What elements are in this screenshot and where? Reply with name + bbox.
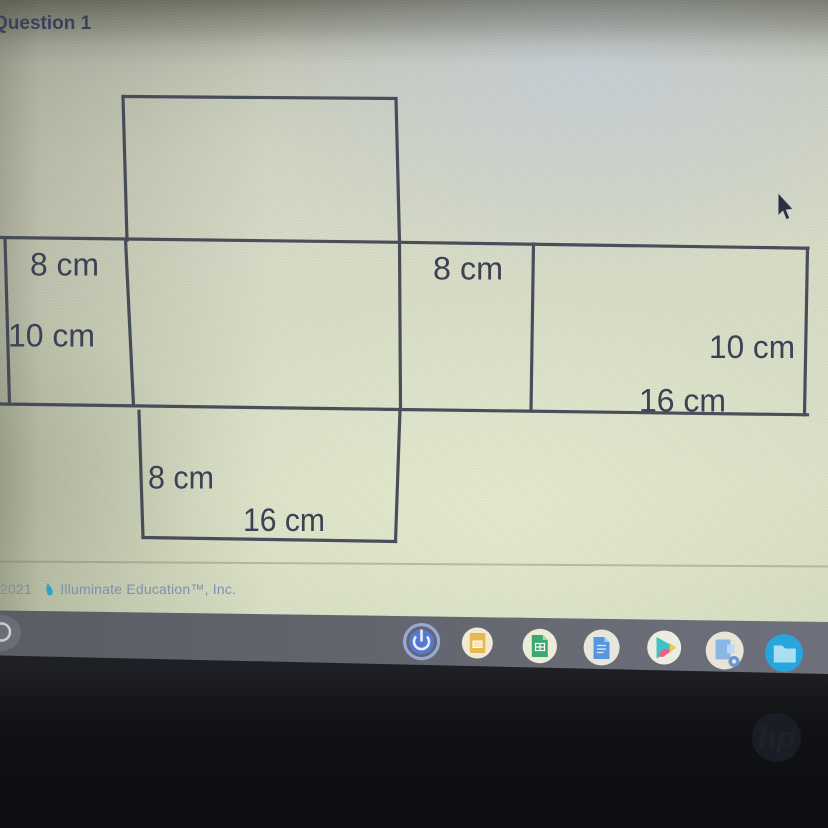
svg-text:hp: hp	[758, 721, 795, 754]
svg-text:16 cm: 16 cm	[243, 502, 325, 538]
svg-text:8 cm: 8 cm	[433, 251, 503, 287]
svg-text:8 cm: 8 cm	[148, 460, 214, 496]
svg-text:10 cm: 10 cm	[8, 318, 95, 354]
svg-text:16 cm: 16 cm	[639, 383, 726, 419]
svg-text:10 cm: 10 cm	[709, 329, 795, 365]
svg-text:8 cm: 8 cm	[30, 247, 99, 283]
